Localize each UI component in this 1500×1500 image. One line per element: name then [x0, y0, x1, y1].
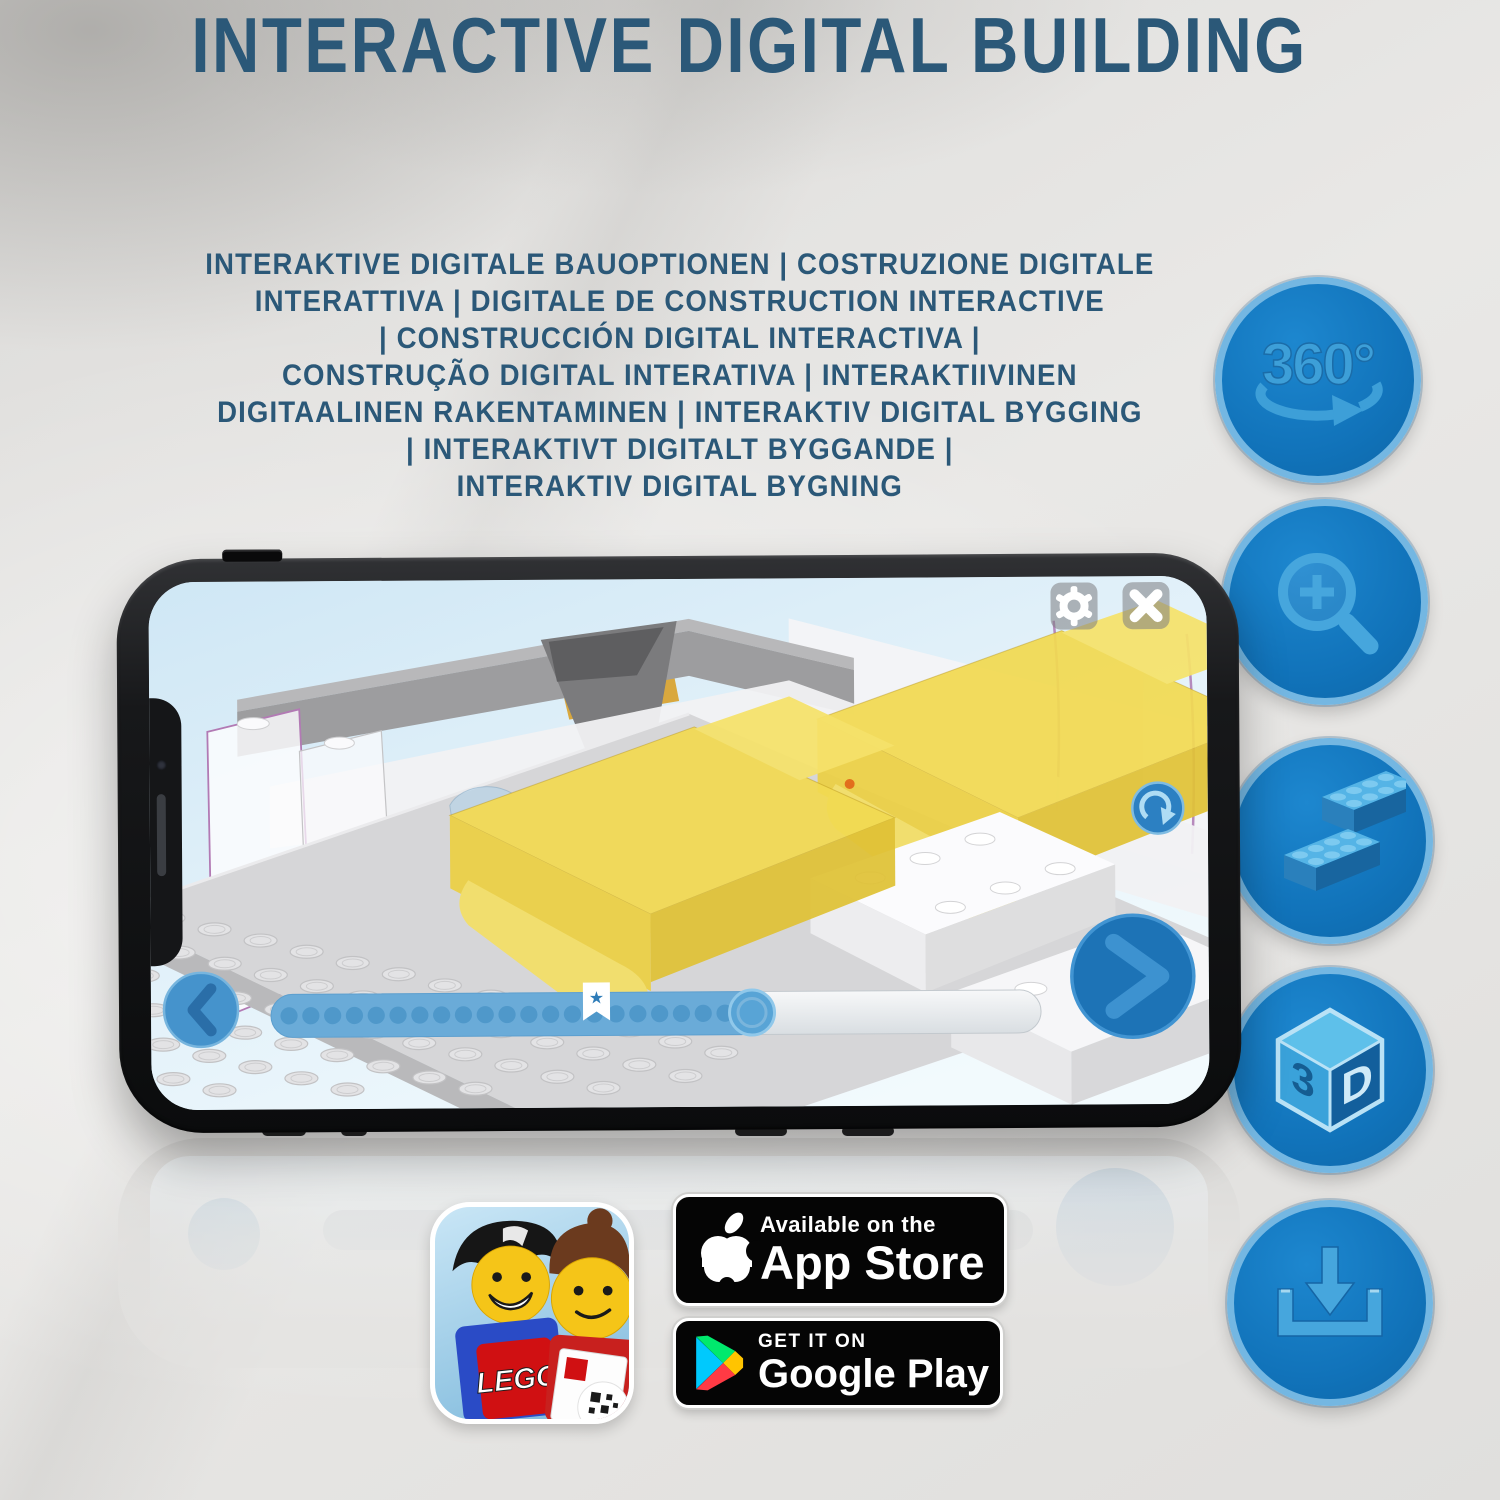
app-store-name: App Store — [760, 1238, 985, 1288]
progress-thumb[interactable] — [729, 990, 774, 1035]
phone-notch — [148, 698, 182, 966]
feature-digital-brick — [1227, 738, 1433, 944]
google-play-name: Google Play — [758, 1353, 989, 1395]
apple-icon — [694, 1211, 760, 1289]
page-background: INTERACTIVE DIGITAL BUILDING INTERAKTIVE… — [0, 0, 1500, 1500]
phone-screen: ★ — [148, 576, 1209, 1110]
next-button[interactable] — [1071, 915, 1194, 1038]
rotate-button[interactable] — [1132, 782, 1183, 833]
lego-brick-icon — [1254, 765, 1406, 917]
google-play-icon — [692, 1333, 758, 1393]
multilingual-subtitle: INTERAKTIVE DIGITALE BAUOPTIONEN | COSTR… — [150, 246, 1210, 505]
360-rotation-icon: 360° — [1242, 304, 1394, 456]
app-store-badge[interactable]: Available on the App Store — [673, 1194, 1007, 1306]
3d-cube-icon: 3 D — [1254, 994, 1406, 1146]
phone-top-button — [222, 549, 282, 561]
feature-zoom — [1222, 499, 1428, 705]
speaker-icon — [157, 794, 167, 876]
feature-3d-view: 3 D — [1227, 967, 1433, 1173]
svg-text:360°: 360° — [1262, 332, 1374, 397]
google-play-tagline: GET IT ON — [758, 1331, 989, 1353]
camera-icon — [156, 760, 166, 770]
feature-360-rotation: 360° — [1215, 277, 1421, 483]
page-title: INTERACTIVE DIGITAL BUILDING — [0, 0, 1500, 91]
download-icon — [1254, 1227, 1406, 1379]
feature-download — [1227, 1200, 1433, 1406]
lego-app-icon[interactable]: LEGO — [430, 1202, 634, 1424]
magnifier-plus-icon — [1249, 526, 1401, 678]
lego-builder-app: ★ — [148, 576, 1209, 1110]
app-store-tagline: Available on the — [760, 1212, 985, 1238]
lego-minifigures-art: LEGO — [435, 1207, 629, 1419]
google-play-badge[interactable]: GET IT ON Google Play — [673, 1318, 1003, 1408]
phone: ★ — [116, 553, 1241, 1134]
bookmark-star-icon: ★ — [589, 988, 604, 1007]
previous-button[interactable] — [164, 973, 238, 1047]
